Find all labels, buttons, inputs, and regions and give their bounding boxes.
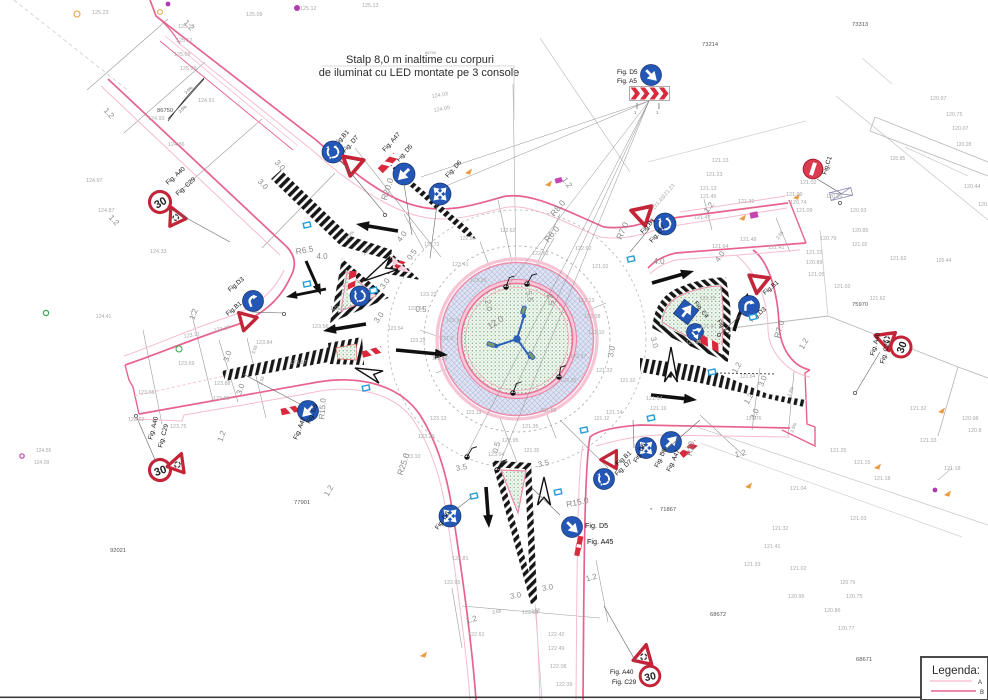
svg-text:123.23: 123.23 [418, 434, 435, 440]
svg-text:125.12: 125.12 [300, 6, 317, 12]
svg-text:123.69: 123.69 [178, 361, 195, 367]
svg-text:124.55: 124.55 [36, 448, 52, 454]
svg-text:122.65: 122.65 [444, 580, 461, 586]
svg-text:123.87: 123.87 [290, 360, 307, 366]
svg-text:123.75: 123.75 [170, 424, 187, 430]
svg-text:121.41: 121.41 [764, 544, 781, 550]
svg-text:121.64: 121.64 [740, 374, 756, 380]
svg-text:121.48: 121.48 [740, 237, 757, 243]
svg-text:124.87: 124.87 [98, 208, 115, 214]
svg-text:121.05: 121.05 [808, 272, 825, 278]
svg-text:121.64: 121.64 [712, 244, 729, 250]
svg-text:123.66: 123.66 [138, 390, 155, 396]
svg-text:120.98: 120.98 [962, 416, 979, 422]
svg-text:121.02: 121.02 [852, 242, 868, 248]
svg-text:120.8: 120.8 [968, 428, 982, 434]
svg-text:86750: 86750 [425, 50, 437, 55]
svg-text:122.39: 122.39 [556, 682, 573, 688]
svg-text:120.85: 120.85 [852, 228, 869, 234]
svg-text:121.18: 121.18 [874, 476, 891, 482]
svg-text:121.02: 121.02 [790, 566, 807, 572]
svg-text:122.59: 122.59 [522, 610, 539, 616]
svg-text:121.02: 121.02 [834, 284, 851, 290]
svg-text:125.09: 125.09 [246, 12, 263, 18]
svg-text:120.07: 120.07 [952, 126, 969, 132]
svg-text:125.23: 125.23 [92, 10, 109, 16]
svg-text:122.08: 122.08 [550, 664, 567, 670]
svg-text:122.49: 122.49 [548, 646, 565, 652]
svg-text:125.13: 125.13 [362, 3, 379, 9]
svg-text:123.10: 123.10 [404, 454, 421, 460]
svg-text:123.73: 123.73 [424, 242, 440, 248]
svg-text:121.33: 121.33 [920, 438, 937, 444]
svg-text:122.42: 122.42 [548, 632, 565, 638]
svg-text:73313: 73313 [852, 22, 868, 28]
svg-text:121.03: 121.03 [850, 516, 867, 522]
svg-text:123.54: 123.54 [388, 326, 404, 332]
svg-text:120.79: 120.79 [840, 580, 856, 586]
svg-text:121.72: 121.72 [700, 296, 716, 302]
svg-text:123.62: 123.62 [128, 417, 145, 423]
svg-text:121.18: 121.18 [944, 466, 961, 472]
svg-text:123.56: 123.56 [312, 324, 329, 330]
svg-text:125.12: 125.12 [176, 38, 193, 44]
svg-text:125.09: 125.09 [174, 52, 191, 58]
svg-text:122.61: 122.61 [468, 632, 485, 638]
svg-text:de iluminat cu LED montate pe: de iluminat cu LED montate pe 3 console [319, 67, 520, 79]
svg-text:Legenda:: Legenda: [932, 665, 980, 677]
svg-text:122.08: 122.08 [584, 314, 601, 320]
svg-text:Fig. D5: Fig. D5 [585, 521, 608, 530]
svg-text:123.34: 123.34 [432, 356, 448, 362]
svg-text:B: B [980, 690, 984, 696]
svg-text:121.14: 121.14 [646, 396, 663, 402]
svg-text:122.62: 122.62 [532, 251, 549, 257]
svg-text:124.09: 124.09 [34, 460, 50, 466]
svg-text:120.99: 120.99 [826, 194, 843, 200]
svg-text:120.75: 120.75 [846, 594, 863, 600]
svg-text:71867: 71867 [660, 507, 676, 513]
svg-text:R15.0: R15.0 [317, 397, 328, 420]
svg-text:124.33: 124.33 [150, 249, 167, 255]
svg-text:123.34: 123.34 [408, 306, 425, 312]
svg-text:120.44: 120.44 [936, 258, 952, 264]
svg-text:123.64: 123.64 [330, 306, 347, 312]
svg-text:Fig. A5: Fig. A5 [617, 78, 637, 85]
svg-text:124.93: 124.93 [148, 116, 165, 122]
svg-text:121.35: 121.35 [522, 424, 539, 430]
svg-text:121.35: 121.35 [524, 448, 540, 454]
svg-text:120.89: 120.89 [806, 260, 823, 266]
svg-text:121.02: 121.02 [800, 180, 817, 186]
svg-text:123.04: 123.04 [488, 452, 505, 458]
svg-text:121.32: 121.32 [772, 526, 789, 532]
svg-text:121.12: 121.12 [594, 416, 610, 422]
svg-text:120.95: 120.95 [788, 594, 805, 600]
svg-text:123.13: 123.13 [430, 416, 447, 422]
svg-text:122.13: 122.13 [578, 298, 595, 304]
svg-text:125.09: 125.09 [180, 66, 197, 72]
svg-text:123.88: 123.88 [214, 381, 231, 387]
svg-text:121.44: 121.44 [686, 340, 702, 346]
svg-text:120.28: 120.28 [956, 142, 972, 148]
svg-text:121.13: 121.13 [700, 186, 717, 192]
svg-text:122.95: 122.95 [502, 438, 519, 444]
svg-text:122.62: 122.62 [460, 236, 476, 242]
svg-text:121.41: 121.41 [700, 324, 717, 330]
svg-text:68672: 68672 [710, 612, 726, 618]
svg-text:120.97: 120.97 [930, 96, 947, 102]
svg-text:121.41: 121.41 [768, 245, 785, 251]
svg-text:120.77: 120.77 [838, 626, 855, 632]
svg-text:86750: 86750 [157, 108, 173, 114]
svg-text:122.66: 122.66 [540, 408, 557, 414]
svg-text:121.16: 121.16 [650, 406, 667, 412]
svg-text:124.97: 124.97 [86, 178, 103, 184]
svg-text:123.23: 123.23 [410, 338, 426, 344]
svg-text:121.76: 121.76 [746, 416, 762, 422]
svg-text:120.93: 120.93 [850, 208, 867, 214]
svg-text:124.86: 124.86 [168, 142, 185, 148]
svg-text:124.91: 124.91 [198, 98, 215, 104]
svg-text:120.2: 120.2 [978, 202, 988, 208]
svg-text:122.35: 122.35 [560, 378, 577, 384]
svg-text:122.62: 122.62 [575, 246, 592, 252]
svg-text:4.0: 4.0 [316, 252, 328, 261]
svg-text:122.62: 122.62 [500, 228, 516, 234]
svg-text:121.23: 121.23 [806, 250, 823, 256]
svg-text:123.95: 123.95 [213, 396, 230, 402]
svg-text:Fig. D5: Fig. D5 [617, 69, 638, 76]
svg-text:Stalp 8,0 m inaltime cu corpur: Stalp 8,0 m inaltime cu corpuri [346, 54, 494, 66]
svg-text:122.10: 122.10 [588, 330, 605, 336]
svg-text:122.81: 122.81 [452, 556, 469, 562]
svg-text:121.04: 121.04 [790, 486, 807, 492]
svg-text:73214: 73214 [702, 42, 719, 48]
svg-text:121.15: 121.15 [854, 460, 871, 466]
svg-text:121.39: 121.39 [738, 199, 755, 205]
svg-text:125.13: 125.13 [178, 24, 195, 30]
svg-text:120.44: 120.44 [964, 184, 981, 190]
svg-text:121.47: 121.47 [694, 215, 711, 221]
svg-text:121.23: 121.23 [706, 172, 723, 178]
svg-text:123.84: 123.84 [256, 340, 273, 346]
svg-text:123.25: 123.25 [470, 278, 487, 284]
svg-text:120.79: 120.79 [820, 236, 837, 242]
svg-text:Fig. A40: Fig. A40 [610, 669, 634, 676]
svg-text:120.85: 120.85 [890, 156, 906, 162]
svg-text:120.74: 120.74 [790, 200, 807, 206]
svg-text:75970: 75970 [852, 302, 868, 308]
svg-text:121.09: 121.09 [786, 192, 803, 198]
svg-text:123.41: 123.41 [452, 262, 469, 268]
svg-text:121.62: 121.62 [870, 296, 886, 302]
svg-text:121.45: 121.45 [700, 194, 717, 200]
svg-text:124.41: 124.41 [96, 314, 112, 320]
svg-text:121.13: 121.13 [712, 158, 729, 164]
svg-text:121.32: 121.32 [620, 378, 636, 384]
svg-text:123.13: 123.13 [466, 410, 482, 416]
svg-text:121.62: 121.62 [890, 256, 907, 262]
svg-text:121.32: 121.32 [596, 368, 613, 374]
svg-text:121.01: 121.01 [592, 264, 609, 270]
svg-text:121.32: 121.32 [910, 406, 927, 412]
svg-text:122.37: 122.37 [570, 354, 587, 360]
svg-text:77901: 77901 [294, 500, 310, 506]
svg-text:121.25: 121.25 [830, 448, 847, 454]
svg-text:Fig. A45: Fig. A45 [587, 537, 613, 546]
svg-text:121.33: 121.33 [744, 562, 761, 568]
svg-text:4.0: 4.0 [653, 257, 665, 266]
svg-text:68671: 68671 [856, 657, 872, 663]
svg-text:121.09: 121.09 [796, 208, 813, 214]
svg-text:120.75: 120.75 [946, 112, 963, 118]
svg-text:122.9: 122.9 [446, 318, 460, 324]
svg-text:123.23: 123.23 [420, 292, 437, 298]
svg-text:A: A [978, 680, 982, 686]
svg-text:121.0: 121.0 [440, 336, 454, 342]
svg-text:92021: 92021 [110, 548, 126, 554]
svg-text:120.86: 120.86 [824, 608, 841, 614]
svg-text:Fig. C29: Fig. C29 [612, 679, 637, 686]
